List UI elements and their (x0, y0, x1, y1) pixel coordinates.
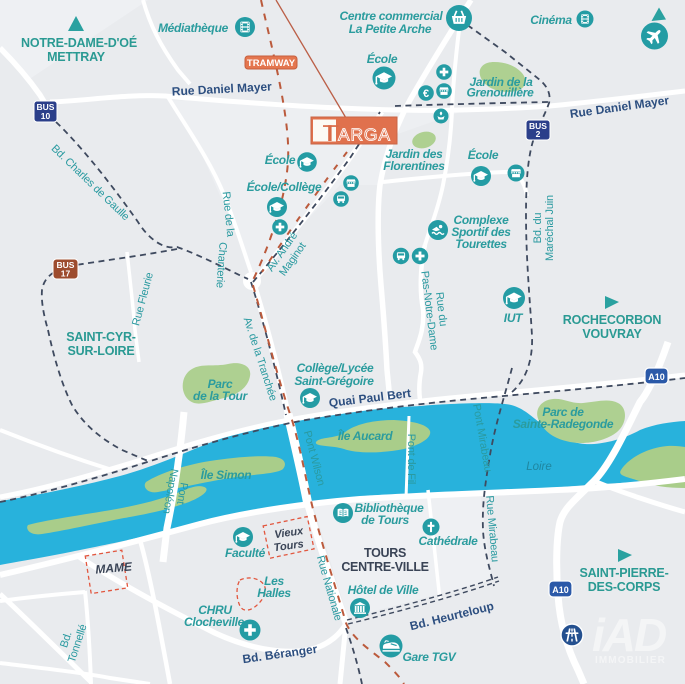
svg-text:Centre commercial: Centre commercial (340, 9, 444, 23)
svg-text:Cathédrale: Cathédrale (418, 534, 478, 548)
svg-text:A10: A10 (648, 372, 665, 382)
svg-text:TOURS: TOURS (364, 546, 406, 560)
svg-text:École: École (468, 147, 499, 162)
svg-text:Île Simon: Île Simon (201, 467, 252, 482)
svg-text:Faculté: Faculté (225, 546, 266, 560)
svg-text:METTRAY: METTRAY (47, 50, 106, 64)
svg-text:ARGA: ARGA (338, 125, 391, 145)
svg-text:2: 2 (536, 129, 541, 139)
svg-text:La Petite Arche: La Petite Arche (349, 22, 432, 36)
svg-text:Médiathèque: Médiathèque (158, 21, 229, 35)
svg-text:Saint-Grégoire: Saint-Grégoire (294, 374, 374, 388)
svg-text:Sainte-Radegonde: Sainte-Radegonde (513, 417, 614, 431)
svg-text:CENTRE-VILLE: CENTRE-VILLE (341, 560, 428, 574)
svg-text:Cinéma: Cinéma (530, 13, 572, 27)
svg-text:17: 17 (61, 269, 71, 279)
svg-text:Tourettes: Tourettes (455, 237, 507, 251)
svg-text:A10: A10 (552, 585, 569, 595)
svg-text:École: École (265, 152, 296, 167)
svg-text:Clocheville: Clocheville (184, 615, 245, 629)
svg-text:SUR-LOIRE: SUR-LOIRE (68, 344, 135, 358)
svg-text:Grenouillère: Grenouillère (466, 86, 534, 100)
svg-text:Florentines: Florentines (383, 159, 445, 173)
svg-text:École: École (367, 51, 398, 66)
svg-text:IUT: IUT (504, 311, 524, 325)
svg-text:TRAMWAY: TRAMWAY (247, 58, 296, 69)
svg-text:ROCHECORBON: ROCHECORBON (563, 313, 662, 327)
svg-text:Maréchal Juin: Maréchal Juin (544, 195, 556, 261)
svg-text:SAINT-PIERRE-: SAINT-PIERRE- (579, 566, 668, 580)
svg-text:10: 10 (41, 111, 51, 121)
svg-text:DES-CORPS: DES-CORPS (588, 580, 661, 594)
svg-text:École/Collège: École/Collège (247, 179, 322, 194)
svg-text:Collège/Lycée: Collège/Lycée (297, 361, 374, 375)
svg-text:de la Tour: de la Tour (193, 389, 249, 403)
svg-text:SAINT-CYR-: SAINT-CYR- (66, 330, 136, 344)
svg-text:VOUVRAY: VOUVRAY (582, 327, 642, 341)
svg-text:Bd. du: Bd. du (532, 213, 544, 244)
svg-text:Pont de Fil: Pont de Fil (405, 434, 417, 484)
svg-text:Gare TGV: Gare TGV (403, 650, 457, 664)
svg-text:Hôtel de Ville: Hôtel de Ville (348, 583, 419, 597)
svg-text:Halles: Halles (257, 586, 291, 600)
svg-text:de Tours: de Tours (361, 513, 409, 527)
svg-text:Loire: Loire (526, 461, 552, 473)
svg-text:iAD: iAD (592, 609, 666, 661)
svg-text:IMMOBILIER: IMMOBILIER (595, 655, 666, 666)
svg-text:Île Aucard: Île Aucard (338, 428, 394, 443)
svg-text:NOTRE-DAME-D'OÉ: NOTRE-DAME-D'OÉ (21, 35, 137, 50)
